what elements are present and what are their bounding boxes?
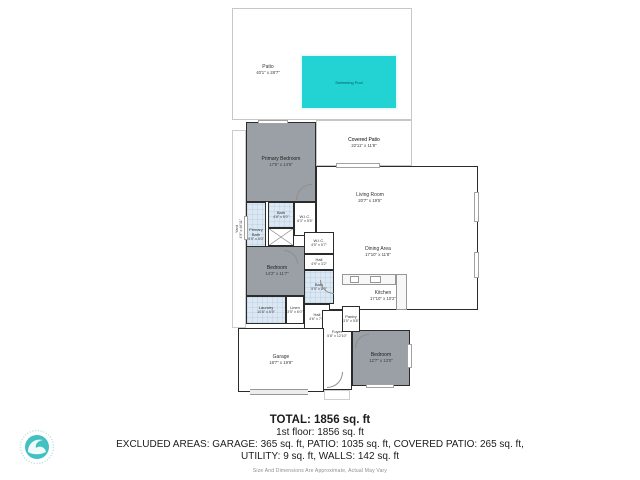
shower-x-icon: [268, 229, 294, 245]
room-dims: 9'9" x 5'0": [248, 237, 264, 241]
floor-plan-page: Patio 40'1" x 28'7" Swimming Pool Yard 4…: [0, 0, 640, 480]
stove-icon: [370, 276, 381, 283]
front-stoop: [324, 390, 350, 400]
window-icon: [474, 192, 479, 222]
window-icon: [407, 344, 412, 368]
sink-icon: [350, 276, 359, 283]
window-icon: [244, 216, 248, 240]
shower-box: [268, 228, 294, 246]
room-dims: 4'5" x 5'7": [311, 243, 327, 247]
window-icon: [258, 120, 288, 124]
kitchen-label: Kitchen 17'10" x 10'2": [348, 290, 418, 302]
room-bedroom-middle: Bedroom 14'2" x 11'7": [246, 246, 308, 296]
wave-logo-icon: [18, 428, 56, 466]
garage-door-icon: [250, 389, 308, 395]
room-linen: Linen 3'5" x 6'0": [286, 296, 304, 324]
room-dims: 22'11" x 11'8": [351, 143, 376, 148]
room-bath-top: Bath 4'8" x 5'0": [268, 202, 294, 228]
room-dims: 10'8" x 6'9": [257, 310, 275, 314]
room-dims: 4'9" x 3'2": [311, 262, 327, 266]
room-dims: 17'5" x 14'6": [269, 162, 293, 167]
excluded-areas-text-1: EXCLUDED AREAS: GARAGE: 365 sq. ft, PATI…: [0, 439, 640, 450]
window-icon: [366, 384, 394, 388]
room-dims: 3'5" x 6'0": [287, 310, 303, 314]
swimming-pool: Swimming Pool: [300, 54, 398, 110]
dining-area-label: Dining Area 17'10" x 11'8": [338, 246, 418, 258]
room-dims: 17'10" x 11'8": [338, 252, 418, 257]
kitchen-island: [396, 274, 407, 310]
window-icon: [474, 252, 479, 278]
pool-label: Swimming Pool: [335, 80, 363, 85]
room-garage: Garage 18'7" x 19'8": [238, 328, 324, 392]
room-dims: 17'10" x 10'2": [348, 296, 418, 301]
first-floor-area-text: 1st floor: 1856 sq. ft: [0, 427, 640, 438]
room-dims: 8'3" x 5'5": [297, 219, 313, 223]
patio-label: Patio 40'1" x 28'7": [240, 64, 296, 76]
room-hall-upper: Hall 4'9" x 3'2": [304, 254, 334, 270]
disclaimer-text: Size And Dimensions Are Approximate, Act…: [0, 468, 640, 474]
room-dims: 3'0" x 5'8": [343, 319, 359, 323]
room-dims: 20'7" x 19'5": [330, 198, 410, 203]
room-pantry: Pantry 3'0" x 5'8": [342, 306, 360, 332]
room-wic-small: W.I.C. 4'5" x 5'7": [304, 232, 334, 254]
total-area-text: TOTAL: 1856 sq. ft: [0, 414, 640, 426]
area-summary: TOTAL: 1856 sq. ft 1st floor: 1856 sq. f…: [0, 414, 640, 474]
sliding-door-icon: [336, 163, 380, 168]
room-name: Primary Bath: [247, 227, 265, 237]
room-dims: 12'7" x 13'0": [369, 358, 393, 363]
room-wic-top: W.I.C. 8'3" x 5'5": [294, 202, 316, 236]
living-room-label: Living Room 20'7" x 19'5": [330, 192, 410, 204]
covered-patio: Covered Patio 22'11" x 11'8": [316, 120, 412, 166]
room-dims: 4'8" x 5'0": [273, 215, 289, 219]
room-laundry: Laundry 10'8" x 6'9": [246, 296, 286, 324]
room-dims: 40'1" x 28'7": [240, 70, 296, 75]
room-dims: 18'7" x 19'8": [269, 360, 293, 365]
excluded-areas-text-2: UTILITY: 9 sq. ft, WALLS: 142 sq. ft: [0, 451, 640, 462]
room-dims: 14'2" x 11'7": [265, 271, 288, 276]
room-dims: 5'8" x 12'10": [327, 334, 347, 338]
